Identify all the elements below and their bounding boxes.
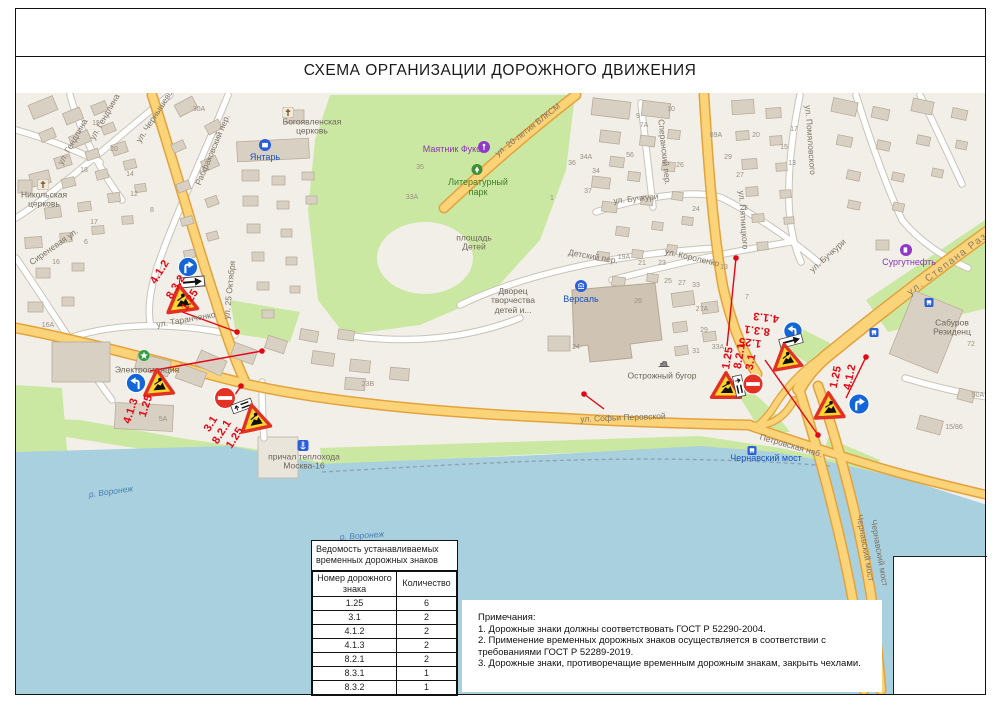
title-divider [15,56,986,57]
table-row: 8.3.21 [313,680,457,694]
scheme-sheet: ул. Чернышевскогоул. Гендлинаул. Гендлин… [0,0,1000,706]
signs-table-title: Ведомость устанавливаемых временных доро… [312,541,457,571]
table-row: 1.256 [313,596,457,610]
sign-count-cell: 2 [397,638,457,652]
sign-number-cell: 3.1 [313,610,397,624]
page-title: СХЕМА ОРГАНИЗАЦИИ ДОРОЖНОГО ДВИЖЕНИЯ [0,62,1000,80]
sign-number-cell: 8.2.1 [313,652,397,666]
column-header-sign-number: Номер дорожного знака [313,571,397,596]
notes-block: Примечания: 1. Дорожные знаки должны соо… [462,600,882,692]
sign-number-cell: 4.1.3 [313,638,397,652]
notes-heading: Примечания: [478,612,863,624]
table-row: 8.3.11 [313,666,457,680]
sign-count-cell: 2 [397,610,457,624]
signs-table-body: 1.2563.124.1.224.1.328.2.128.3.118.3.21 [313,596,457,694]
note-item: 3. Дорожные знаки, противоречащие времен… [478,658,863,670]
notes-items: 1. Дорожные знаки должны соответствовать… [478,624,863,670]
sign-count-cell: 6 [397,596,457,610]
note-item: 1. Дорожные знаки должны соответствовать… [478,624,863,636]
table-row: 4.1.32 [313,638,457,652]
sign-count-cell: 2 [397,624,457,638]
sign-number-cell: 8.3.2 [313,680,397,694]
sign-number-cell: 1.25 [313,596,397,610]
column-header-quantity: Количество [397,571,457,596]
table-row: 3.12 [313,610,457,624]
note-item: 2. Применение временных дорожных знаков … [478,635,863,658]
sign-count-cell: 2 [397,652,457,666]
signs-table: Ведомость устанавливаемых временных доро… [311,540,458,696]
table-row: 4.1.22 [313,624,457,638]
sign-number-cell: 8.3.1 [313,666,397,680]
sign-count-cell: 1 [397,680,457,694]
sheet-border [15,8,986,695]
sign-count-cell: 1 [397,666,457,680]
table-row: 8.2.12 [313,652,457,666]
sign-number-cell: 4.1.2 [313,624,397,638]
